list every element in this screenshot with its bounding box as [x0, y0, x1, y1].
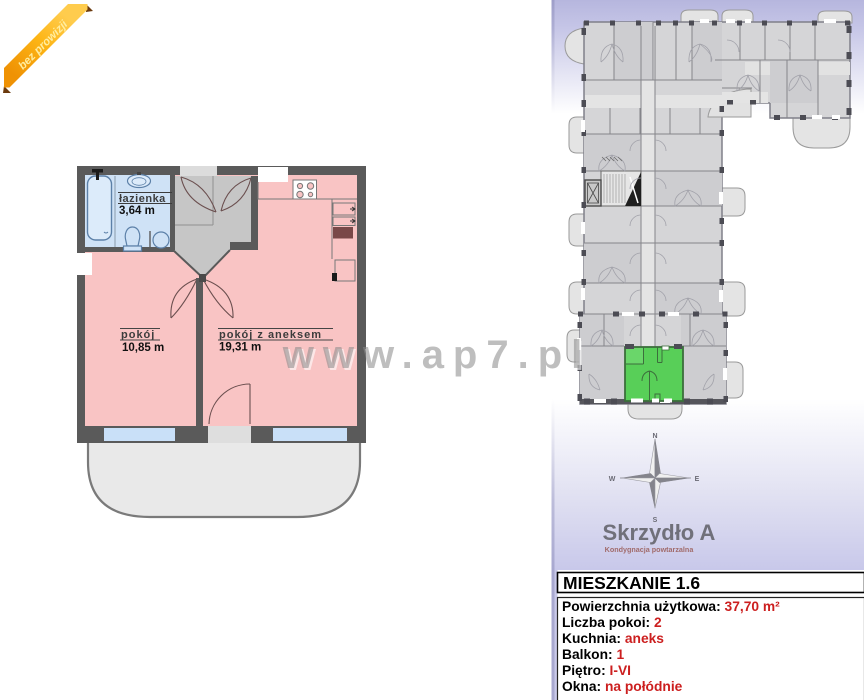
- svg-text:N: N: [652, 433, 657, 440]
- svg-text:Okna: na połódnie: Okna: na połódnie: [562, 679, 683, 694]
- svg-text:10,85 m: 10,85 m: [122, 342, 164, 354]
- svg-text:pokój: pokój: [121, 329, 155, 341]
- svg-text:Powierzchnia użytkowa: 37,70 m: Powierzchnia użytkowa: 37,70 m²: [562, 599, 780, 614]
- svg-text:Piętro: I-VI: Piętro: I-VI: [562, 663, 631, 678]
- svg-text:www.ap7.pl: www.ap7.pl: [282, 333, 592, 377]
- svg-text:MIESZKANIE 1.6: MIESZKANIE 1.6: [563, 573, 700, 593]
- svg-text:Balkon: 1: Balkon: 1: [562, 647, 624, 662]
- svg-text:Liczba pokoi: 2: Liczba pokoi: 2: [562, 615, 662, 630]
- svg-text:E: E: [695, 476, 700, 483]
- svg-text:19,31 m: 19,31 m: [219, 342, 261, 354]
- svg-text:Kuchnia: aneks: Kuchnia: aneks: [562, 631, 664, 646]
- svg-text:Skrzydło A: Skrzydło A: [603, 520, 716, 545]
- svg-text:Kondygnacja powtarzalna: Kondygnacja powtarzalna: [605, 545, 695, 554]
- svg-text:bez prowizji: bez prowizji: [16, 18, 70, 72]
- svg-text:3,64 m: 3,64 m: [119, 205, 155, 217]
- svg-text:W: W: [609, 476, 616, 483]
